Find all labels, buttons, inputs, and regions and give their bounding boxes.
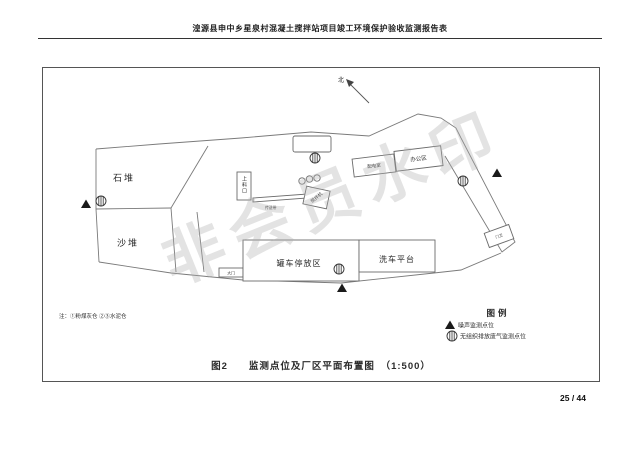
silo-3-icon	[314, 175, 320, 181]
site-boundary-top	[96, 114, 461, 149]
legend-title: 图例	[486, 308, 509, 318]
document-header-title: 湟源县申中乡星泉村混凝土搅拌站项目竣工环境保护验收监测报告表	[0, 23, 640, 34]
site-plan-drawing: 北 上料口 传送带 搅拌机 配电室 办公区	[43, 68, 599, 381]
sand-pile-label: 沙堆	[117, 238, 139, 248]
feed-port-label: 上料口	[241, 175, 247, 194]
noise-point-icon	[81, 200, 91, 209]
figure-caption: 图2 监测点位及厂区平面布置图 （1:500）	[211, 360, 431, 372]
legend-noise-icon	[445, 321, 455, 330]
gas-point-icon	[458, 176, 468, 186]
page-number: 25 / 44	[560, 393, 586, 403]
gate-label: 大门	[227, 271, 235, 276]
legend-noise-label: 噪声监测点位	[458, 322, 494, 330]
legend: 图例 噪声监测点位 无组织排放废气监测点位	[445, 308, 526, 341]
compass-arrow-icon	[346, 79, 354, 87]
stone-pile-label: 石堆	[113, 173, 135, 183]
stone-pile-diagonal	[171, 146, 208, 208]
pile-divider-line	[96, 208, 171, 209]
noise-point-icon	[337, 284, 347, 293]
silo-note: 注：①粉煤灰仓 ②③水泥仓	[59, 312, 127, 320]
yard-road-line	[197, 212, 204, 272]
compass: 北	[338, 76, 369, 103]
mixer-building: 搅拌机	[303, 186, 330, 209]
power-room-building: 配电室	[352, 154, 396, 177]
legend-gas-icon	[447, 331, 457, 341]
report-page: 湟源县申中乡星泉村混凝土搅拌站项目竣工环境保护验收监测报告表	[0, 0, 640, 452]
figure-frame: 北 上料口 传送带 搅拌机 配电室 办公区	[42, 67, 600, 382]
wash-platform-label: 洗车平台	[379, 254, 415, 264]
gas-point-icon	[96, 196, 106, 206]
gas-point-icon	[310, 153, 320, 163]
gate-house-building: 门卫	[484, 225, 514, 248]
silo-1-icon	[299, 178, 305, 184]
compass-label: 北	[338, 76, 344, 84]
legend-gas-label: 无组织排放废气监测点位	[460, 333, 526, 341]
silo-2-icon	[306, 176, 312, 182]
truck-parking-label: 罐车停放区	[277, 258, 322, 268]
gas-point-icon	[334, 264, 344, 274]
yard-left-line	[171, 208, 176, 272]
conveyor-label: 传送带	[265, 205, 277, 210]
noise-point-icon	[492, 169, 502, 178]
small-building	[293, 136, 331, 152]
header-rule	[38, 38, 602, 39]
office-building: 办公区	[394, 146, 443, 172]
